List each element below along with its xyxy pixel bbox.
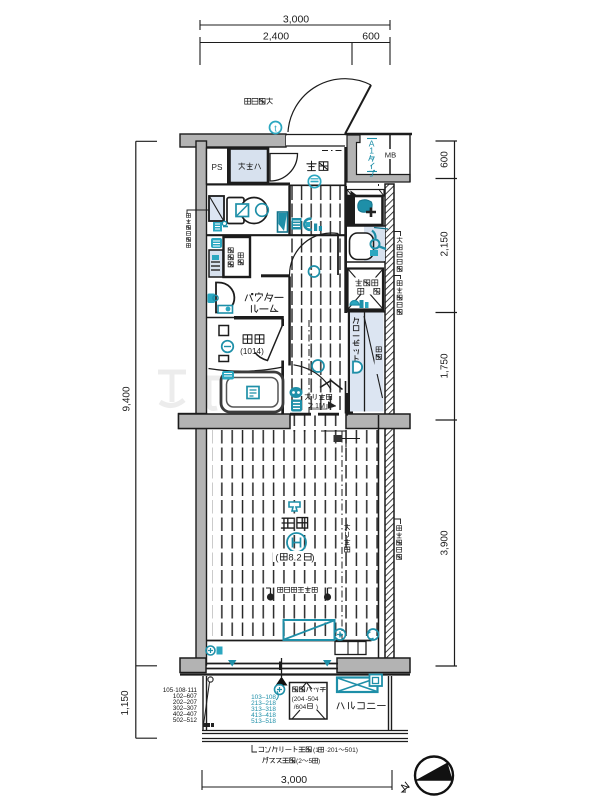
svg-text:2,150: 2,150	[440, 231, 451, 256]
svg-text:/604: /604	[294, 704, 307, 711]
svg-text:): )	[311, 553, 314, 564]
svg-text:(2〜5: (2〜5	[296, 758, 312, 765]
svg-text:9,400: 9,400	[122, 386, 133, 411]
svg-text:·201〜501): ·201〜501)	[325, 747, 358, 754]
svg-text:2,400: 2,400	[263, 31, 289, 43]
svg-text:1,750: 1,750	[440, 353, 451, 378]
svg-text:1,150: 1,150	[120, 690, 131, 715]
svg-text:502–512: 502–512	[173, 717, 198, 724]
svg-text:-504: -504	[306, 696, 319, 703]
svg-text:(1: (1	[313, 747, 319, 754]
svg-text:3,000: 3,000	[281, 774, 307, 786]
svg-text:(1014): (1014)	[240, 347, 264, 356]
svg-text:PS: PS	[212, 163, 223, 172]
svg-text:1: 1	[369, 146, 374, 156]
svg-text:): )	[316, 704, 318, 711]
svg-text:3,900: 3,900	[440, 530, 451, 555]
svg-text:MB: MB	[385, 151, 396, 160]
svg-text:8.2: 8.2	[288, 553, 301, 564]
svg-text:513–518: 513–518	[251, 718, 276, 725]
svg-text:): )	[318, 758, 320, 765]
svg-text:600: 600	[362, 31, 380, 43]
svg-text:3,000: 3,000	[283, 14, 309, 26]
svg-text:(204: (204	[292, 696, 305, 703]
svg-text:600: 600	[440, 151, 451, 168]
